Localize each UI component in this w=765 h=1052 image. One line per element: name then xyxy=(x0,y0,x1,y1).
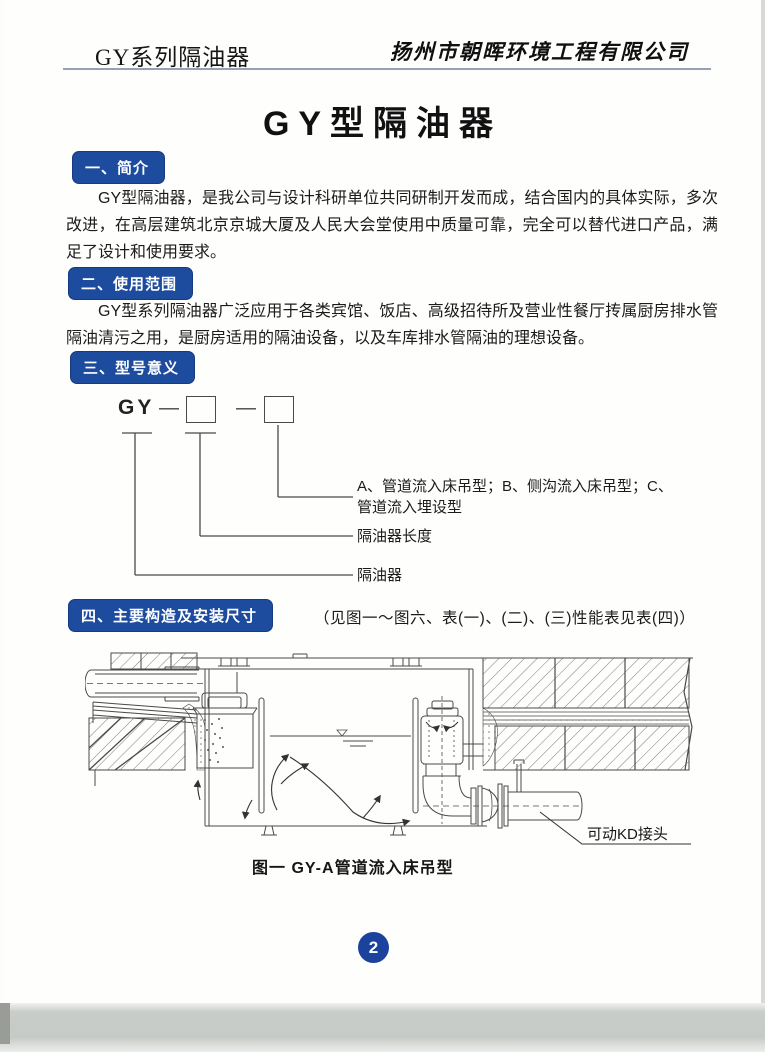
section-badge-scope: 二、使用范围 xyxy=(68,267,193,300)
kd-joint-callout: 可动KD接头 xyxy=(540,812,691,844)
section-badge-intro: 一、简介 xyxy=(72,151,165,184)
model-dash-1: — xyxy=(159,397,179,420)
figure-1-drawing: 可动KD接头 xyxy=(85,652,697,852)
model-code-box-2 xyxy=(264,396,294,423)
model-label-length: 隔油器长度 xyxy=(357,526,432,547)
model-dash-2: — xyxy=(236,397,256,420)
model-prefix: GY xyxy=(118,396,154,420)
header-divider xyxy=(63,68,711,70)
left-wall-section xyxy=(85,653,205,786)
page-number-badge: 2 xyxy=(358,932,389,963)
section-badge-structure: 四、主要构造及安装尺寸 xyxy=(68,599,273,632)
section-badge-model: 三、型号意义 xyxy=(70,351,195,384)
model-code-box-1 xyxy=(186,396,216,423)
oil-separator-cross-section: 可动KD接头 xyxy=(85,652,697,852)
model-label-type: A、管道流入床吊型；B、侧沟流入床吊型；C、管道流入埋设型 xyxy=(357,476,677,518)
scope-paragraph: GY型系列隔油器广泛应用于各类宾馆、饭店、高级招待所及营业性餐厅抟属厨房排水管隔… xyxy=(66,298,718,352)
intro-paragraph: GY型隔油器，是我公司与设计科研单位共同研制开发而成，结合国内的具体实际，多次改… xyxy=(66,185,718,266)
structure-note: （见图一～图六、表(一)、(二)、(三)性能表见表(四)） xyxy=(314,606,695,628)
baffles-and-water-level xyxy=(259,698,418,813)
page-right-edge xyxy=(761,0,765,1003)
model-label-device: 隔油器 xyxy=(357,565,402,586)
document-page: GY系列隔油器 扬州市朝晖环境工程有限公司 GY型隔油器 一、简介 GY型隔油器… xyxy=(6,0,759,1003)
kd-joint-label: 可动KD接头 xyxy=(587,826,668,843)
basket-perforation-dots xyxy=(204,718,224,763)
figure-caption: 图一 GY-A管道流入床吊型 xyxy=(252,854,454,878)
flow-arrows xyxy=(198,755,409,824)
right-wall-section xyxy=(483,658,692,770)
bottom-left-notch xyxy=(0,1003,10,1044)
page-title: GY型隔油器 xyxy=(6,96,759,145)
series-title: GY系列隔油器 xyxy=(95,38,250,72)
bottom-shadow-band xyxy=(0,1003,765,1052)
company-name: 扬州市朝晖环境工程有限公司 xyxy=(390,36,689,66)
model-diagram: GY — — A、管道流入床吊型；B、侧沟流入床吊型；C、管道流入埋设型 隔油器… xyxy=(90,390,704,596)
